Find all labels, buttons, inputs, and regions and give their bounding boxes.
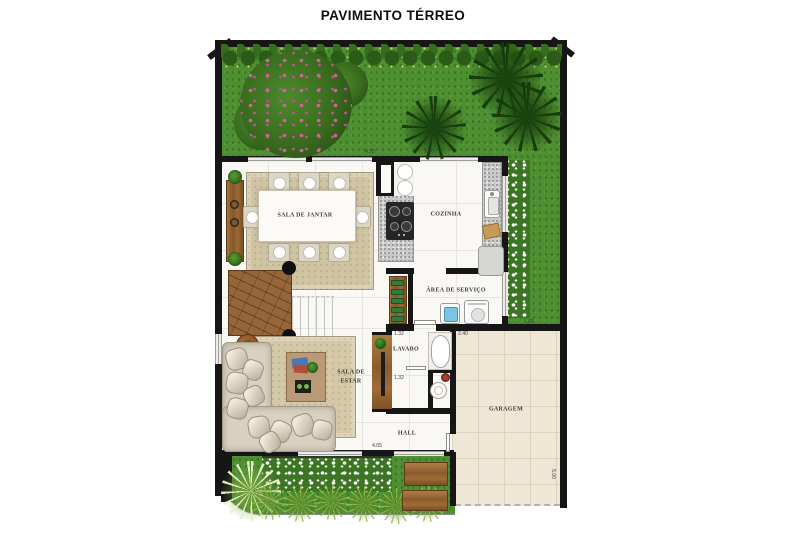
decor-bowl bbox=[441, 373, 450, 382]
toilet bbox=[430, 382, 447, 399]
wall-hall-garage-lower bbox=[450, 452, 456, 506]
grass-tuft-3 bbox=[314, 484, 350, 520]
palm-tree-3 bbox=[492, 82, 562, 152]
window-left-wall bbox=[215, 334, 222, 364]
wall-service-bottom-right-garage-top bbox=[436, 324, 562, 331]
towel-1 bbox=[391, 280, 404, 286]
dining-chair-bottom-2 bbox=[298, 243, 320, 262]
tv-panel bbox=[372, 332, 392, 412]
dining-chair-top-1 bbox=[268, 172, 290, 191]
green-vase bbox=[375, 338, 386, 349]
garage-floor bbox=[452, 328, 562, 506]
door-leaf-service bbox=[414, 320, 436, 325]
kitchen-sink-right bbox=[484, 190, 500, 218]
sideboard-bowl-2 bbox=[230, 218, 239, 227]
staircase-dashed-treads bbox=[292, 296, 334, 338]
plant-sideboard-bottom bbox=[228, 252, 242, 266]
kitchen-sink-bowl-2 bbox=[397, 180, 413, 196]
dining-chair-bottom-1 bbox=[268, 243, 290, 262]
door-leaf-garage bbox=[446, 433, 450, 452]
dining-chair-top-2 bbox=[298, 172, 320, 191]
wall-outer-left bbox=[215, 40, 222, 496]
staircase-wood bbox=[228, 270, 292, 336]
dining-table bbox=[258, 190, 356, 242]
decor-blade bbox=[381, 352, 385, 396]
sideboard-bowl-1 bbox=[230, 200, 239, 209]
plant-sideboard-top bbox=[228, 170, 242, 184]
kitchen-sink-bowl-1 bbox=[397, 164, 413, 180]
towel-3 bbox=[391, 298, 404, 304]
grass-tuft-4 bbox=[346, 486, 382, 522]
entry-step-platform-2 bbox=[402, 490, 448, 511]
laundry-tub bbox=[440, 303, 460, 324]
window-dining-2 bbox=[312, 157, 372, 162]
door-hall-front bbox=[394, 451, 444, 456]
dining-chair-right bbox=[354, 206, 371, 228]
towel-4 bbox=[391, 307, 404, 313]
wall-lavabo-bottom bbox=[386, 408, 454, 414]
towel-2 bbox=[391, 289, 404, 295]
tray bbox=[295, 380, 311, 393]
cooktop bbox=[386, 202, 414, 240]
coffee-table bbox=[286, 352, 326, 402]
grass-tuft-2 bbox=[282, 486, 318, 522]
washing-machine bbox=[464, 300, 489, 324]
refrigerator bbox=[478, 246, 504, 276]
flower-bed-right bbox=[508, 160, 530, 318]
flower-bush-pink-blooms bbox=[240, 50, 352, 158]
dining-chair-bottom-3 bbox=[328, 243, 350, 262]
dining-chair-top-3 bbox=[328, 172, 350, 191]
floor-plan bbox=[0, 0, 786, 539]
door-leaf-wc bbox=[406, 366, 426, 370]
towel-5 bbox=[391, 316, 404, 322]
entry-step-platform-1 bbox=[404, 462, 448, 486]
floor-plan-page: PAVIMENTO TÉRREO bbox=[0, 0, 786, 539]
garage-gate-dashed-line bbox=[455, 504, 560, 506]
kitchen-tall-cabinet bbox=[381, 165, 391, 193]
structural-column-top bbox=[282, 261, 296, 275]
table-plant bbox=[307, 362, 318, 373]
wall-shelf-niche bbox=[408, 274, 413, 326]
lavabo-basin bbox=[431, 335, 450, 368]
palm-tree-1 bbox=[402, 96, 466, 160]
